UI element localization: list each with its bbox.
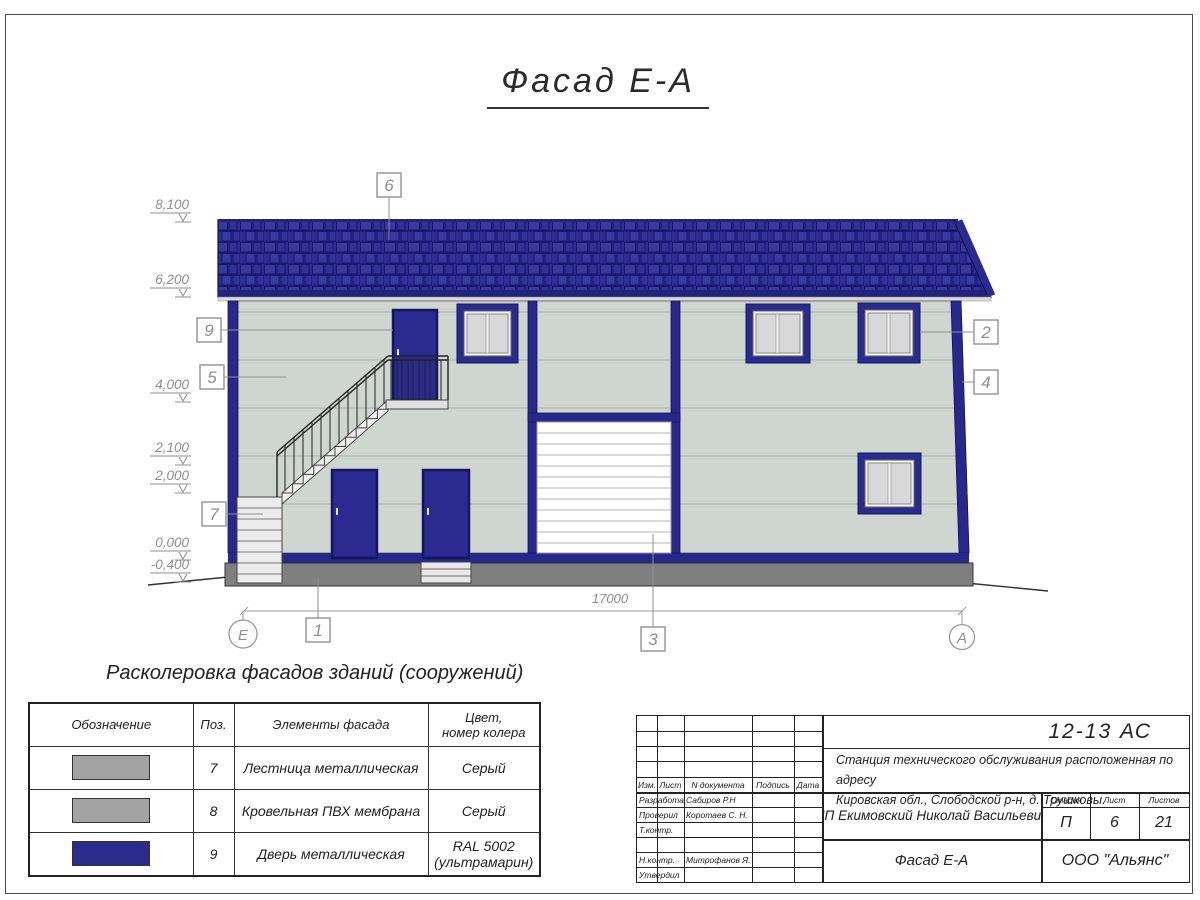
tb-name	[686, 837, 752, 852]
legend-color-name: Серый	[428, 746, 540, 789]
tb-name	[686, 867, 752, 882]
title-block: Изм. Лист N документа Подпись Дата Разра…	[636, 715, 1190, 883]
tb-sheets-value: 21	[1139, 807, 1189, 839]
tb-role: Т.контр.	[639, 822, 684, 837]
tb-col-ndoc: N документа	[684, 777, 752, 792]
color-swatch	[72, 841, 150, 866]
tb-stage-value: П	[1042, 807, 1090, 839]
legend-row: 9 Дверь металлическая RAL 5002(ультрамар…	[29, 832, 540, 876]
tb-role: Проверил	[639, 807, 684, 822]
tb-name: Коротаев С. Н.	[686, 807, 752, 822]
tb-col-list: Лист	[657, 777, 684, 792]
page-title: Фасад Е-А	[433, 62, 763, 109]
legend-pos: 9	[193, 832, 234, 876]
legend-color-name: RAL 5002(ультрамарин)	[428, 832, 540, 876]
tb-name: Митрофанов Я. А.	[686, 852, 752, 867]
legend-title: Расколеровка фасадов зданий (сооружений)	[106, 662, 523, 685]
legend-row: 8 Кровельная ПВХ мембрана Серый	[29, 789, 540, 832]
legend-col-pos: Поз.	[193, 703, 234, 746]
tb-company: ООО "Альянс"	[1041, 839, 1189, 882]
tb-role: Утвердил	[639, 867, 684, 882]
tb-sheet-label: Лист	[1090, 792, 1139, 807]
legend-color-name: Серый	[428, 789, 540, 832]
tb-role: Разработал	[639, 792, 684, 807]
color-swatch	[72, 798, 150, 823]
tb-sheet-title: Фасад Е-А	[822, 839, 1041, 882]
tb-sheets-label: Листов	[1139, 792, 1189, 807]
tb-role	[639, 837, 684, 852]
legend-pos: 8	[193, 789, 234, 832]
legend-element: Дверь металлическая	[234, 832, 428, 876]
drawing-sheet: { "title": "Фасад Е-А", "colors": { "roo…	[0, 0, 1200, 900]
legend-col-element: Элементы фасада	[234, 703, 428, 746]
tb-role: Н.контр.	[639, 852, 684, 867]
legend-table: Обозначение Поз. Элементы фасада Цвет,но…	[28, 702, 541, 877]
tb-name: Сабиров Р.Н	[686, 792, 752, 807]
legend-col-designation: Обозначение	[29, 703, 193, 746]
tb-client: ИП Екимовский Николай Васильевич	[822, 792, 1041, 839]
tb-name	[686, 822, 752, 837]
tb-col-izm: Изм.	[637, 777, 657, 792]
legend-col-color: Цвет,номер колера	[428, 703, 540, 746]
tb-sheet-value: 6	[1090, 807, 1139, 839]
tb-col-podpis: Подпись	[752, 777, 794, 792]
tb-stage-label: Стадия	[1042, 792, 1090, 807]
legend-element: Кровельная ПВХ мембрана	[234, 789, 428, 832]
legend-element: Лестница металлическая	[234, 746, 428, 789]
tb-doc-number: 12-13 АС	[822, 716, 1152, 748]
legend-row: 7 Лестница металлическая Серый	[29, 746, 540, 789]
tb-col-data: Дата	[794, 777, 822, 792]
color-swatch	[72, 755, 150, 780]
legend-pos: 7	[193, 746, 234, 789]
